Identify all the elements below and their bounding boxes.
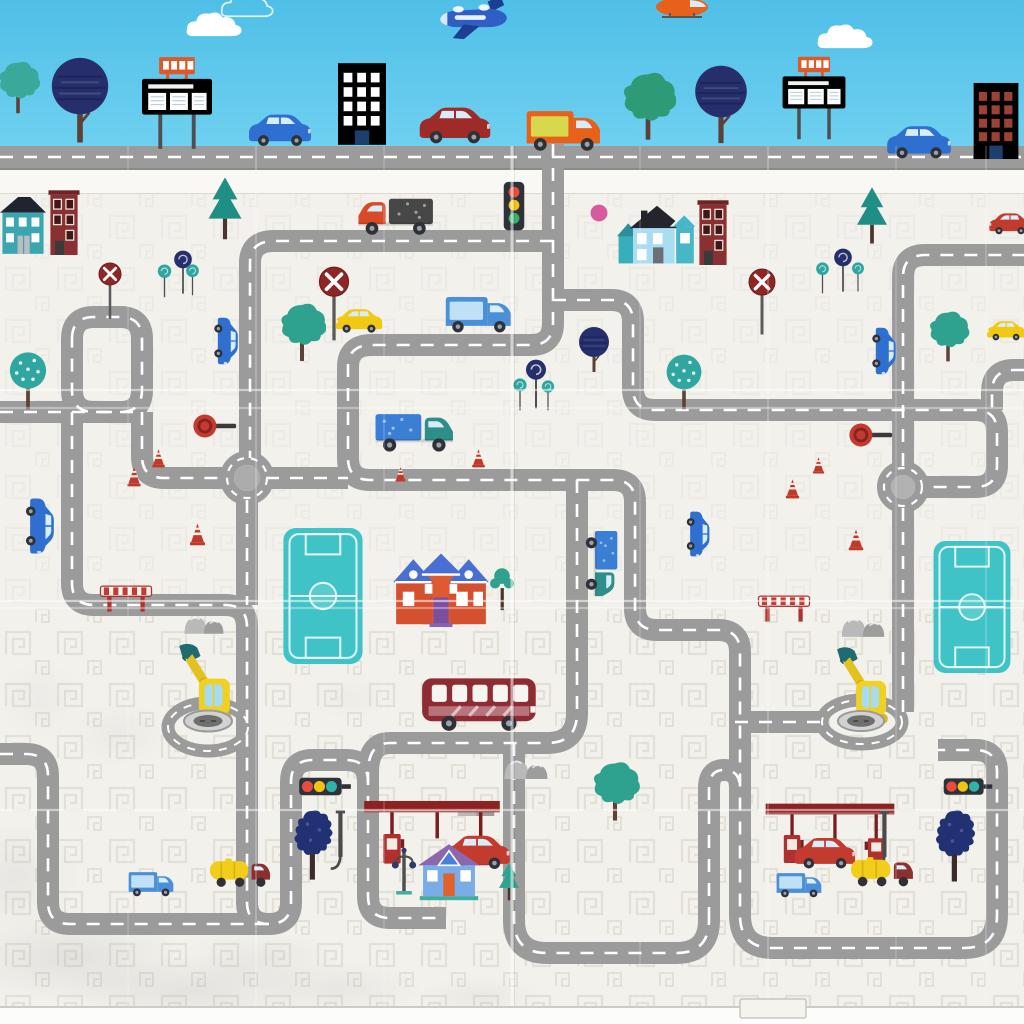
sky <box>0 0 1024 146</box>
building-red <box>48 190 79 255</box>
building-orange <box>974 83 1019 159</box>
smudge <box>312 676 388 720</box>
smudge <box>180 930 340 990</box>
building-orange <box>338 63 386 145</box>
smudge <box>0 660 80 740</box>
photo-background <box>0 1007 1024 1024</box>
manhole <box>838 711 884 731</box>
building-red <box>697 200 728 265</box>
playmat-roadmap <box>0 0 1024 1024</box>
smudge <box>68 699 168 767</box>
manhole <box>184 711 232 732</box>
soccer-field <box>283 528 362 664</box>
playmat-photo <box>0 0 1024 1024</box>
roundabout-center <box>891 475 915 499</box>
mat-edge-tab <box>740 999 806 1018</box>
balloon-dot <box>591 205 608 222</box>
